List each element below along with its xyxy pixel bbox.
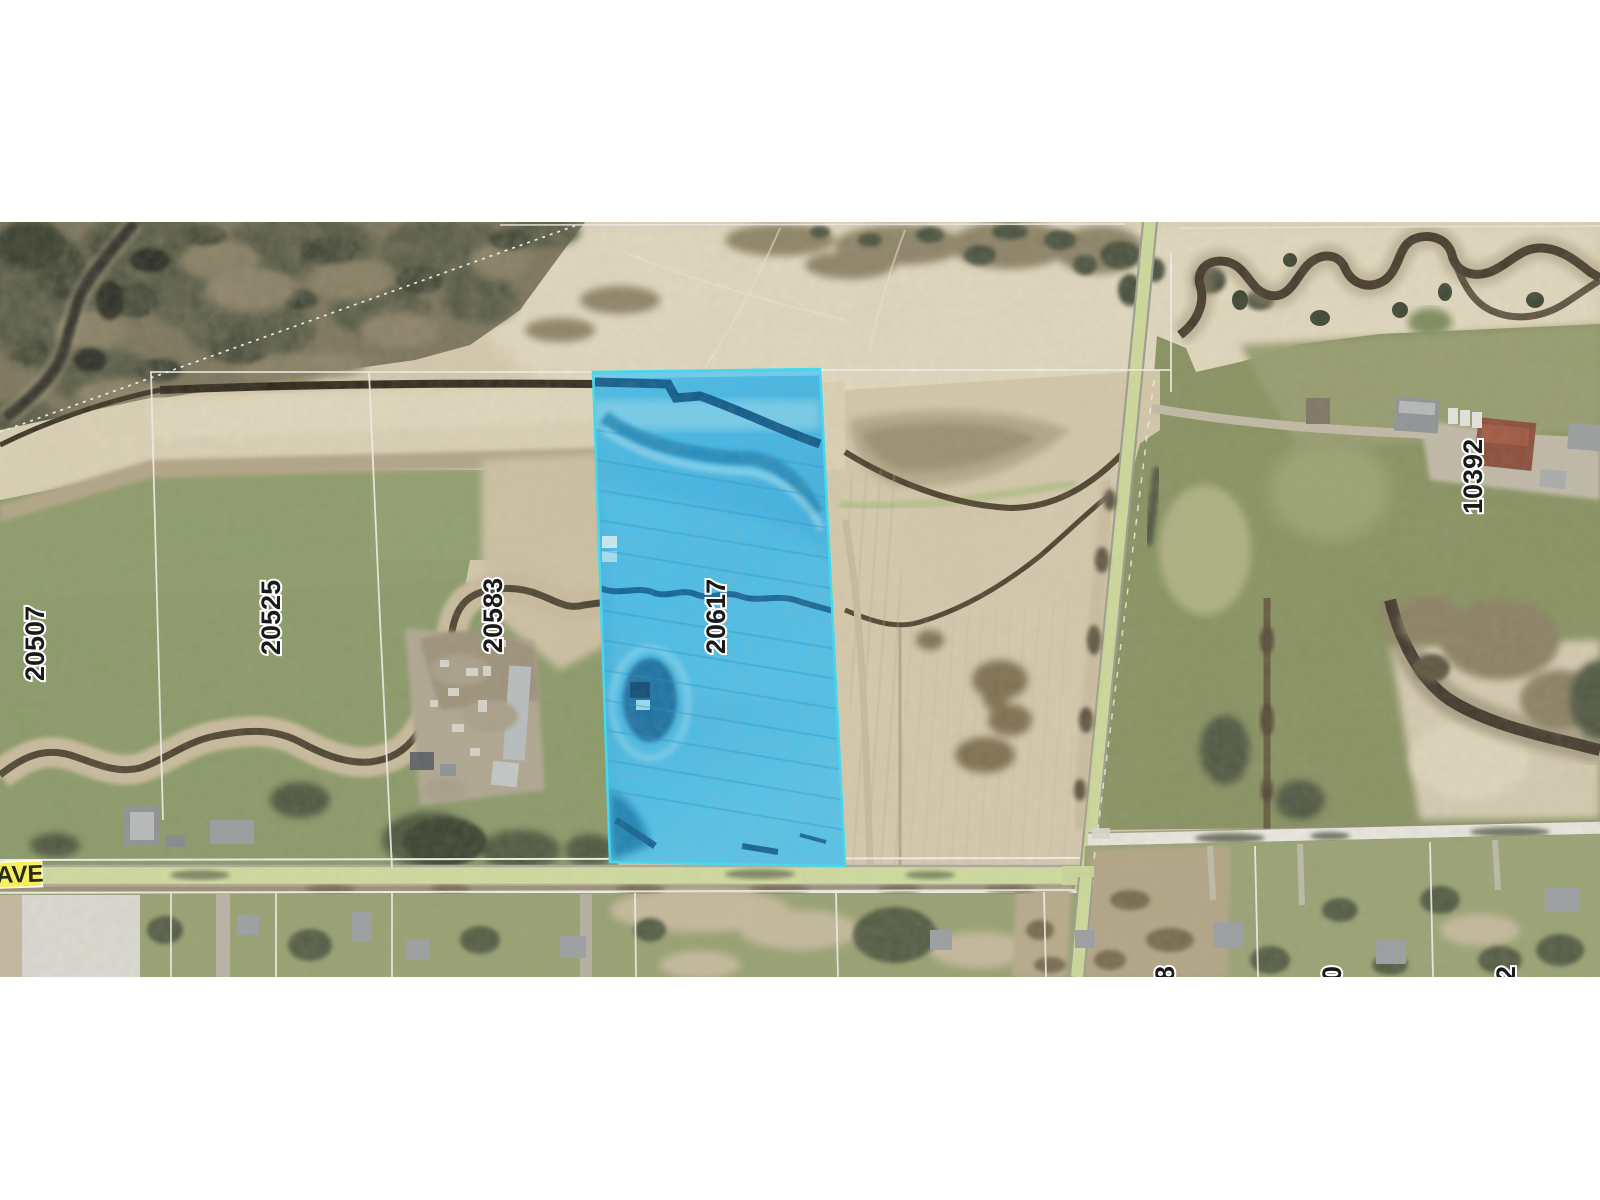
svg-text:20525: 20525	[256, 580, 286, 655]
svg-text:AVE: AVE	[0, 860, 44, 889]
svg-text:20507: 20507	[20, 606, 50, 681]
svg-text:20583: 20583	[478, 578, 508, 653]
svg-text:10392: 10392	[1458, 439, 1488, 514]
svg-text:20617: 20617	[701, 579, 731, 654]
